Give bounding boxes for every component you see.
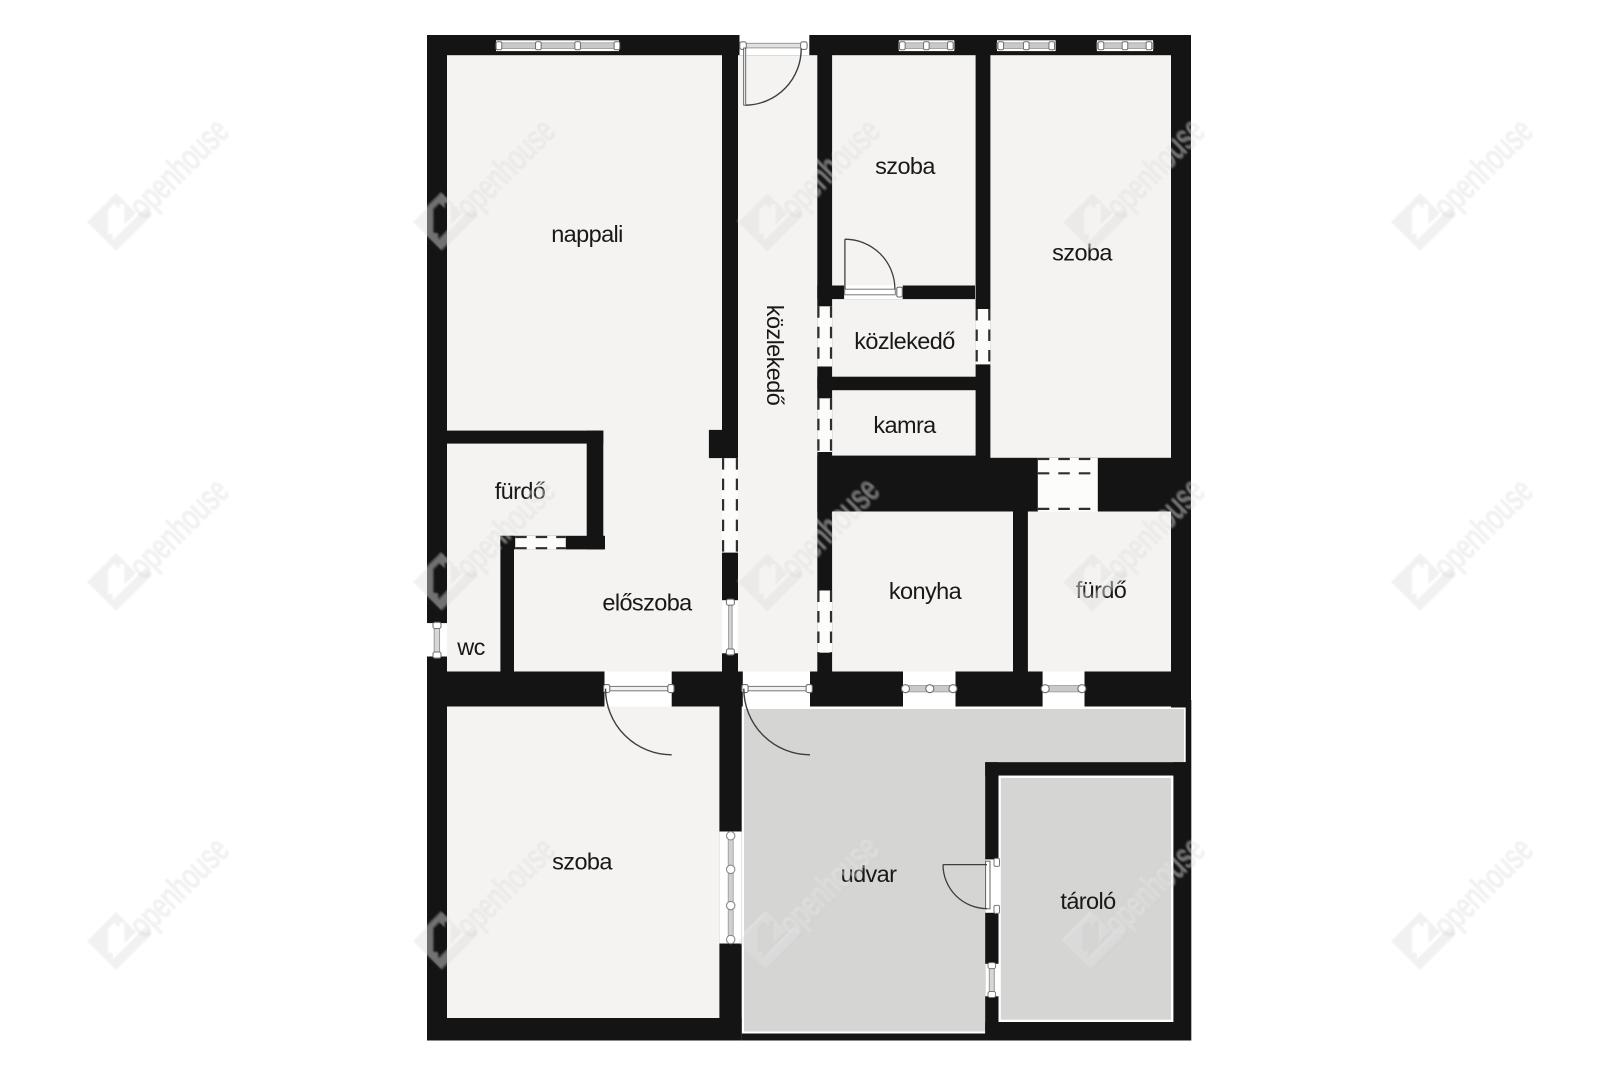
svg-text:konyha: konyha <box>889 578 963 604</box>
svg-text:wc: wc <box>456 634 485 660</box>
svg-text:szoba: szoba <box>1052 240 1113 266</box>
svg-text:közlekedő: közlekedő <box>762 305 788 406</box>
svg-text:nappali: nappali <box>551 221 623 247</box>
svg-text:előszoba: előszoba <box>602 590 693 616</box>
svg-text:közlekedő: közlekedő <box>854 328 955 354</box>
svg-text:szoba: szoba <box>875 153 936 179</box>
svg-text:szoba: szoba <box>552 849 613 875</box>
svg-text:kamra: kamra <box>873 412 937 438</box>
